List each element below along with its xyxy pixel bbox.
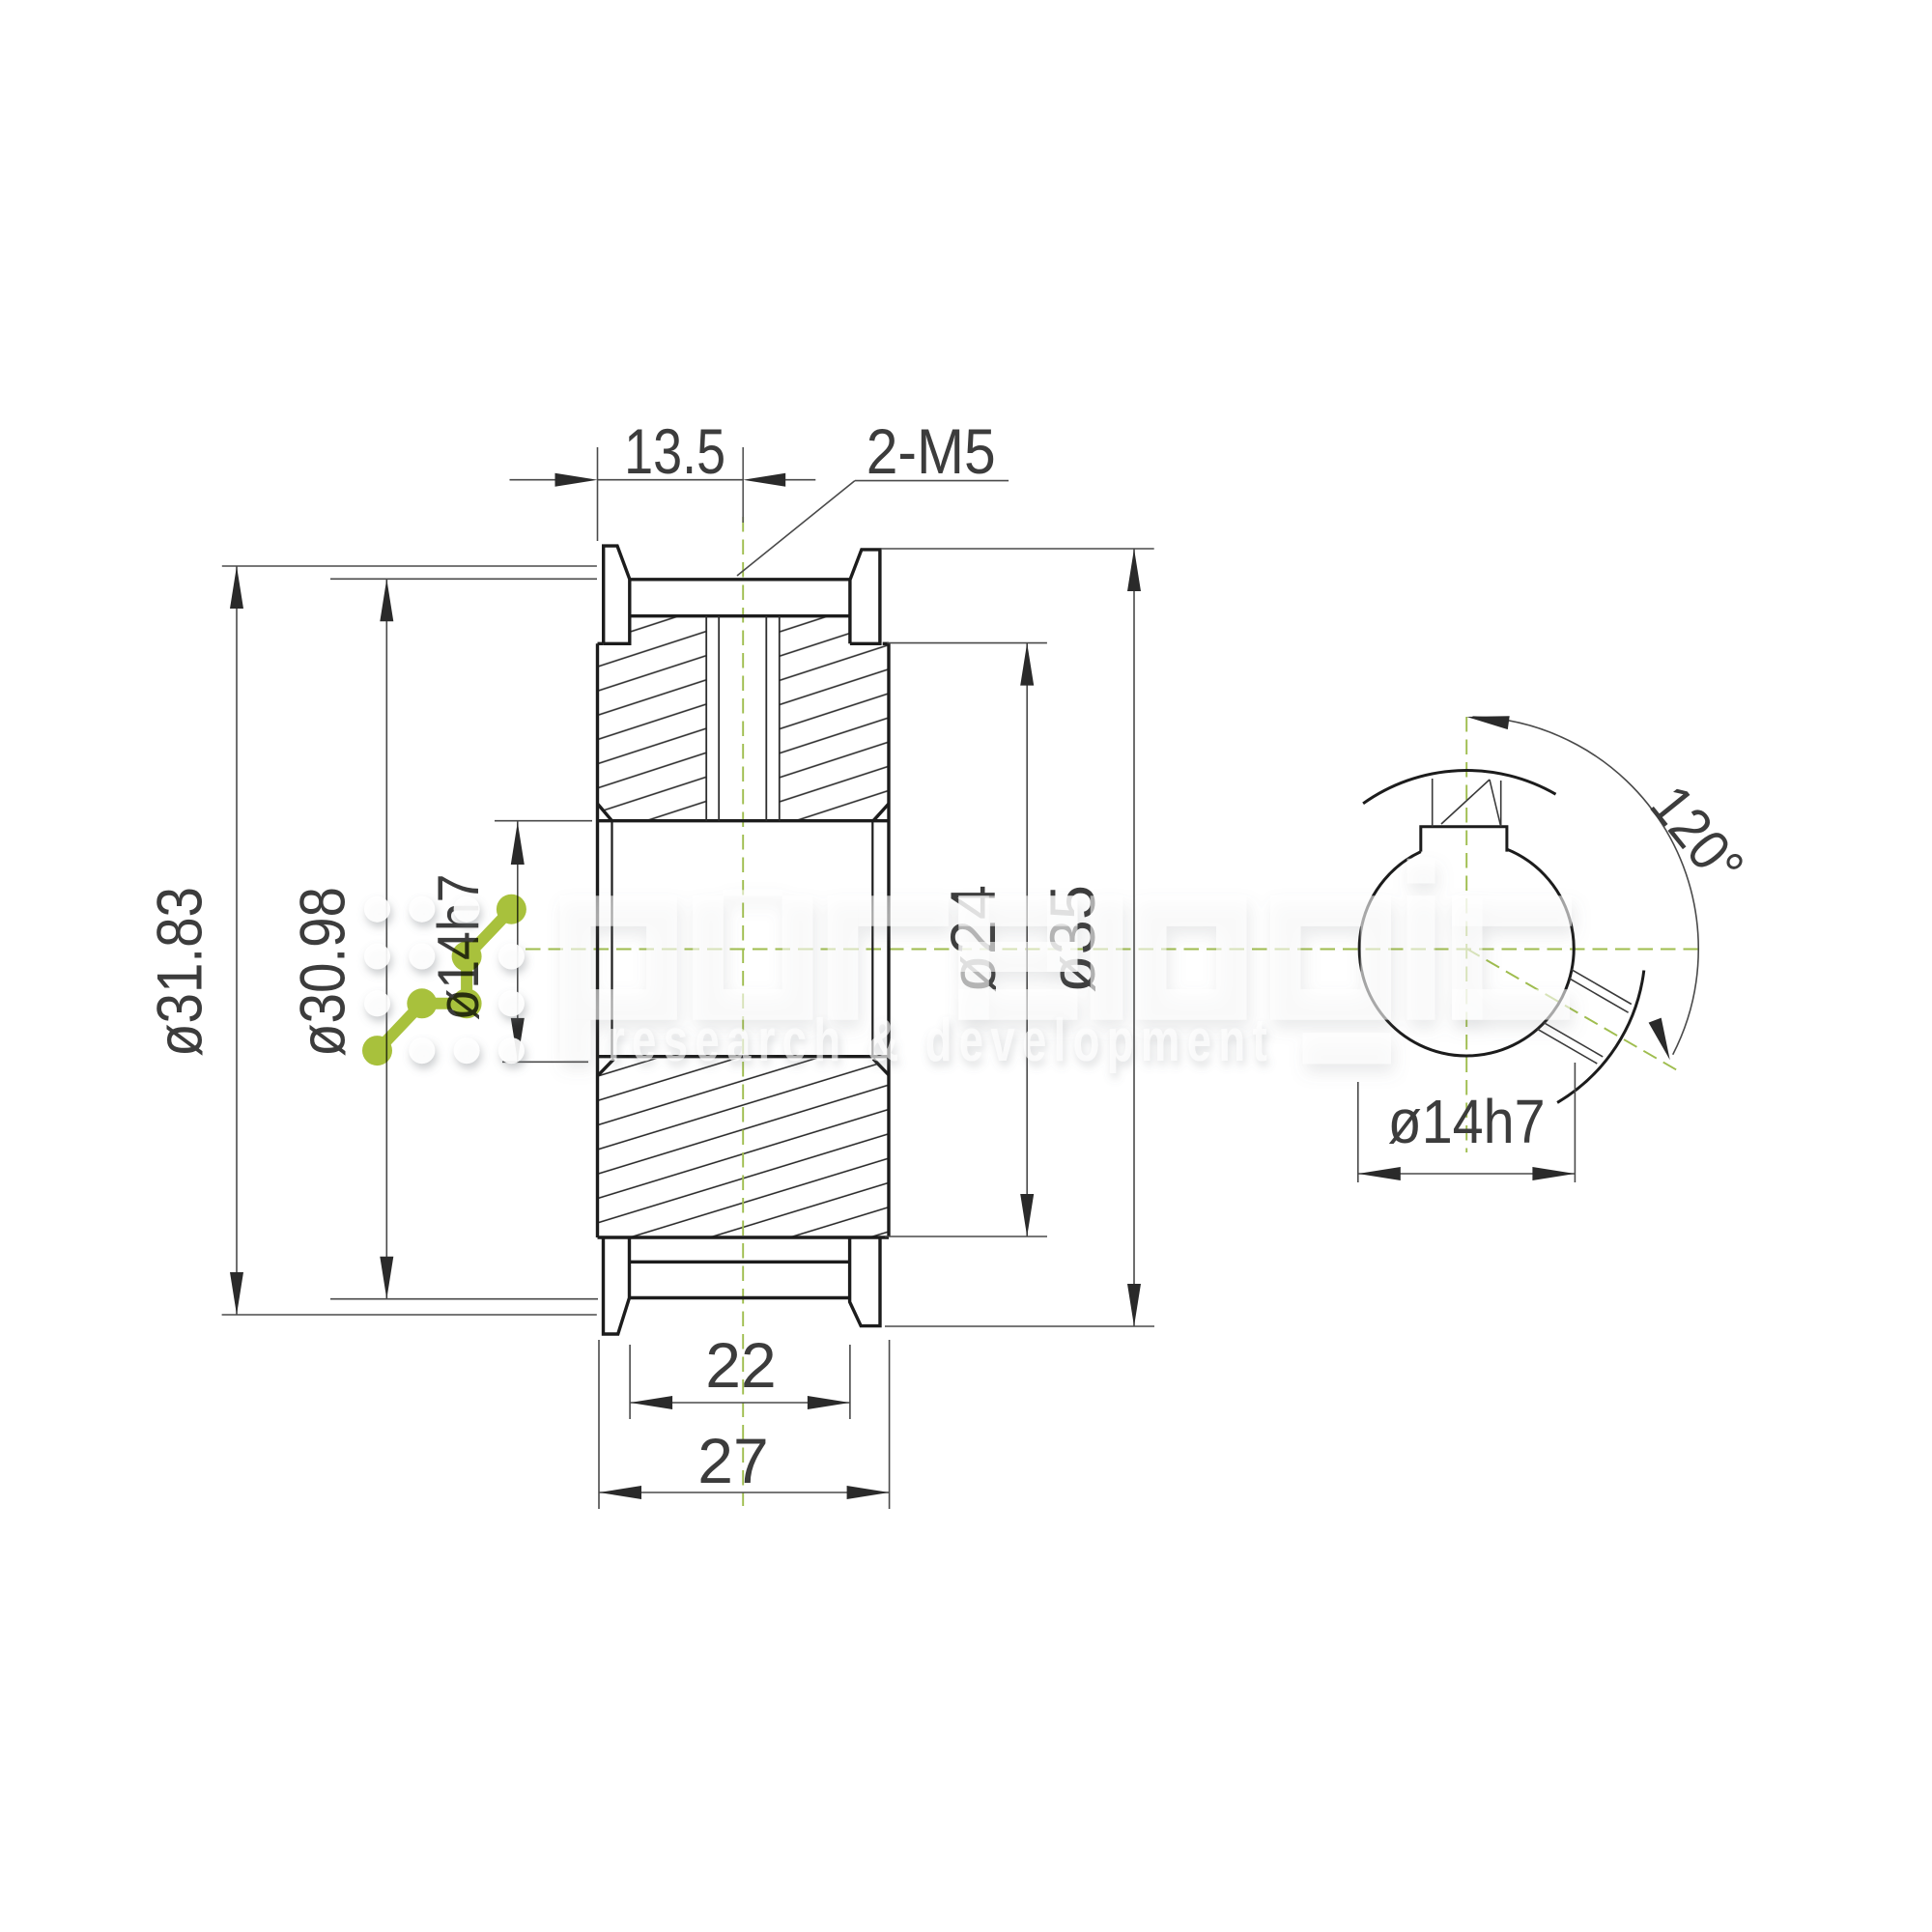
svg-text:research & development: research & development [608, 1008, 1274, 1074]
svg-text:ø31.83: ø31.83 [143, 887, 214, 1057]
svg-text:2-M5: 2-M5 [867, 415, 996, 487]
svg-text:13.5: 13.5 [624, 415, 725, 487]
svg-text:ø14h7: ø14h7 [1388, 1087, 1546, 1156]
svg-text:ø30.98: ø30.98 [287, 887, 358, 1057]
svg-text:22: 22 [705, 1329, 776, 1401]
svg-text:27: 27 [697, 1425, 768, 1496]
